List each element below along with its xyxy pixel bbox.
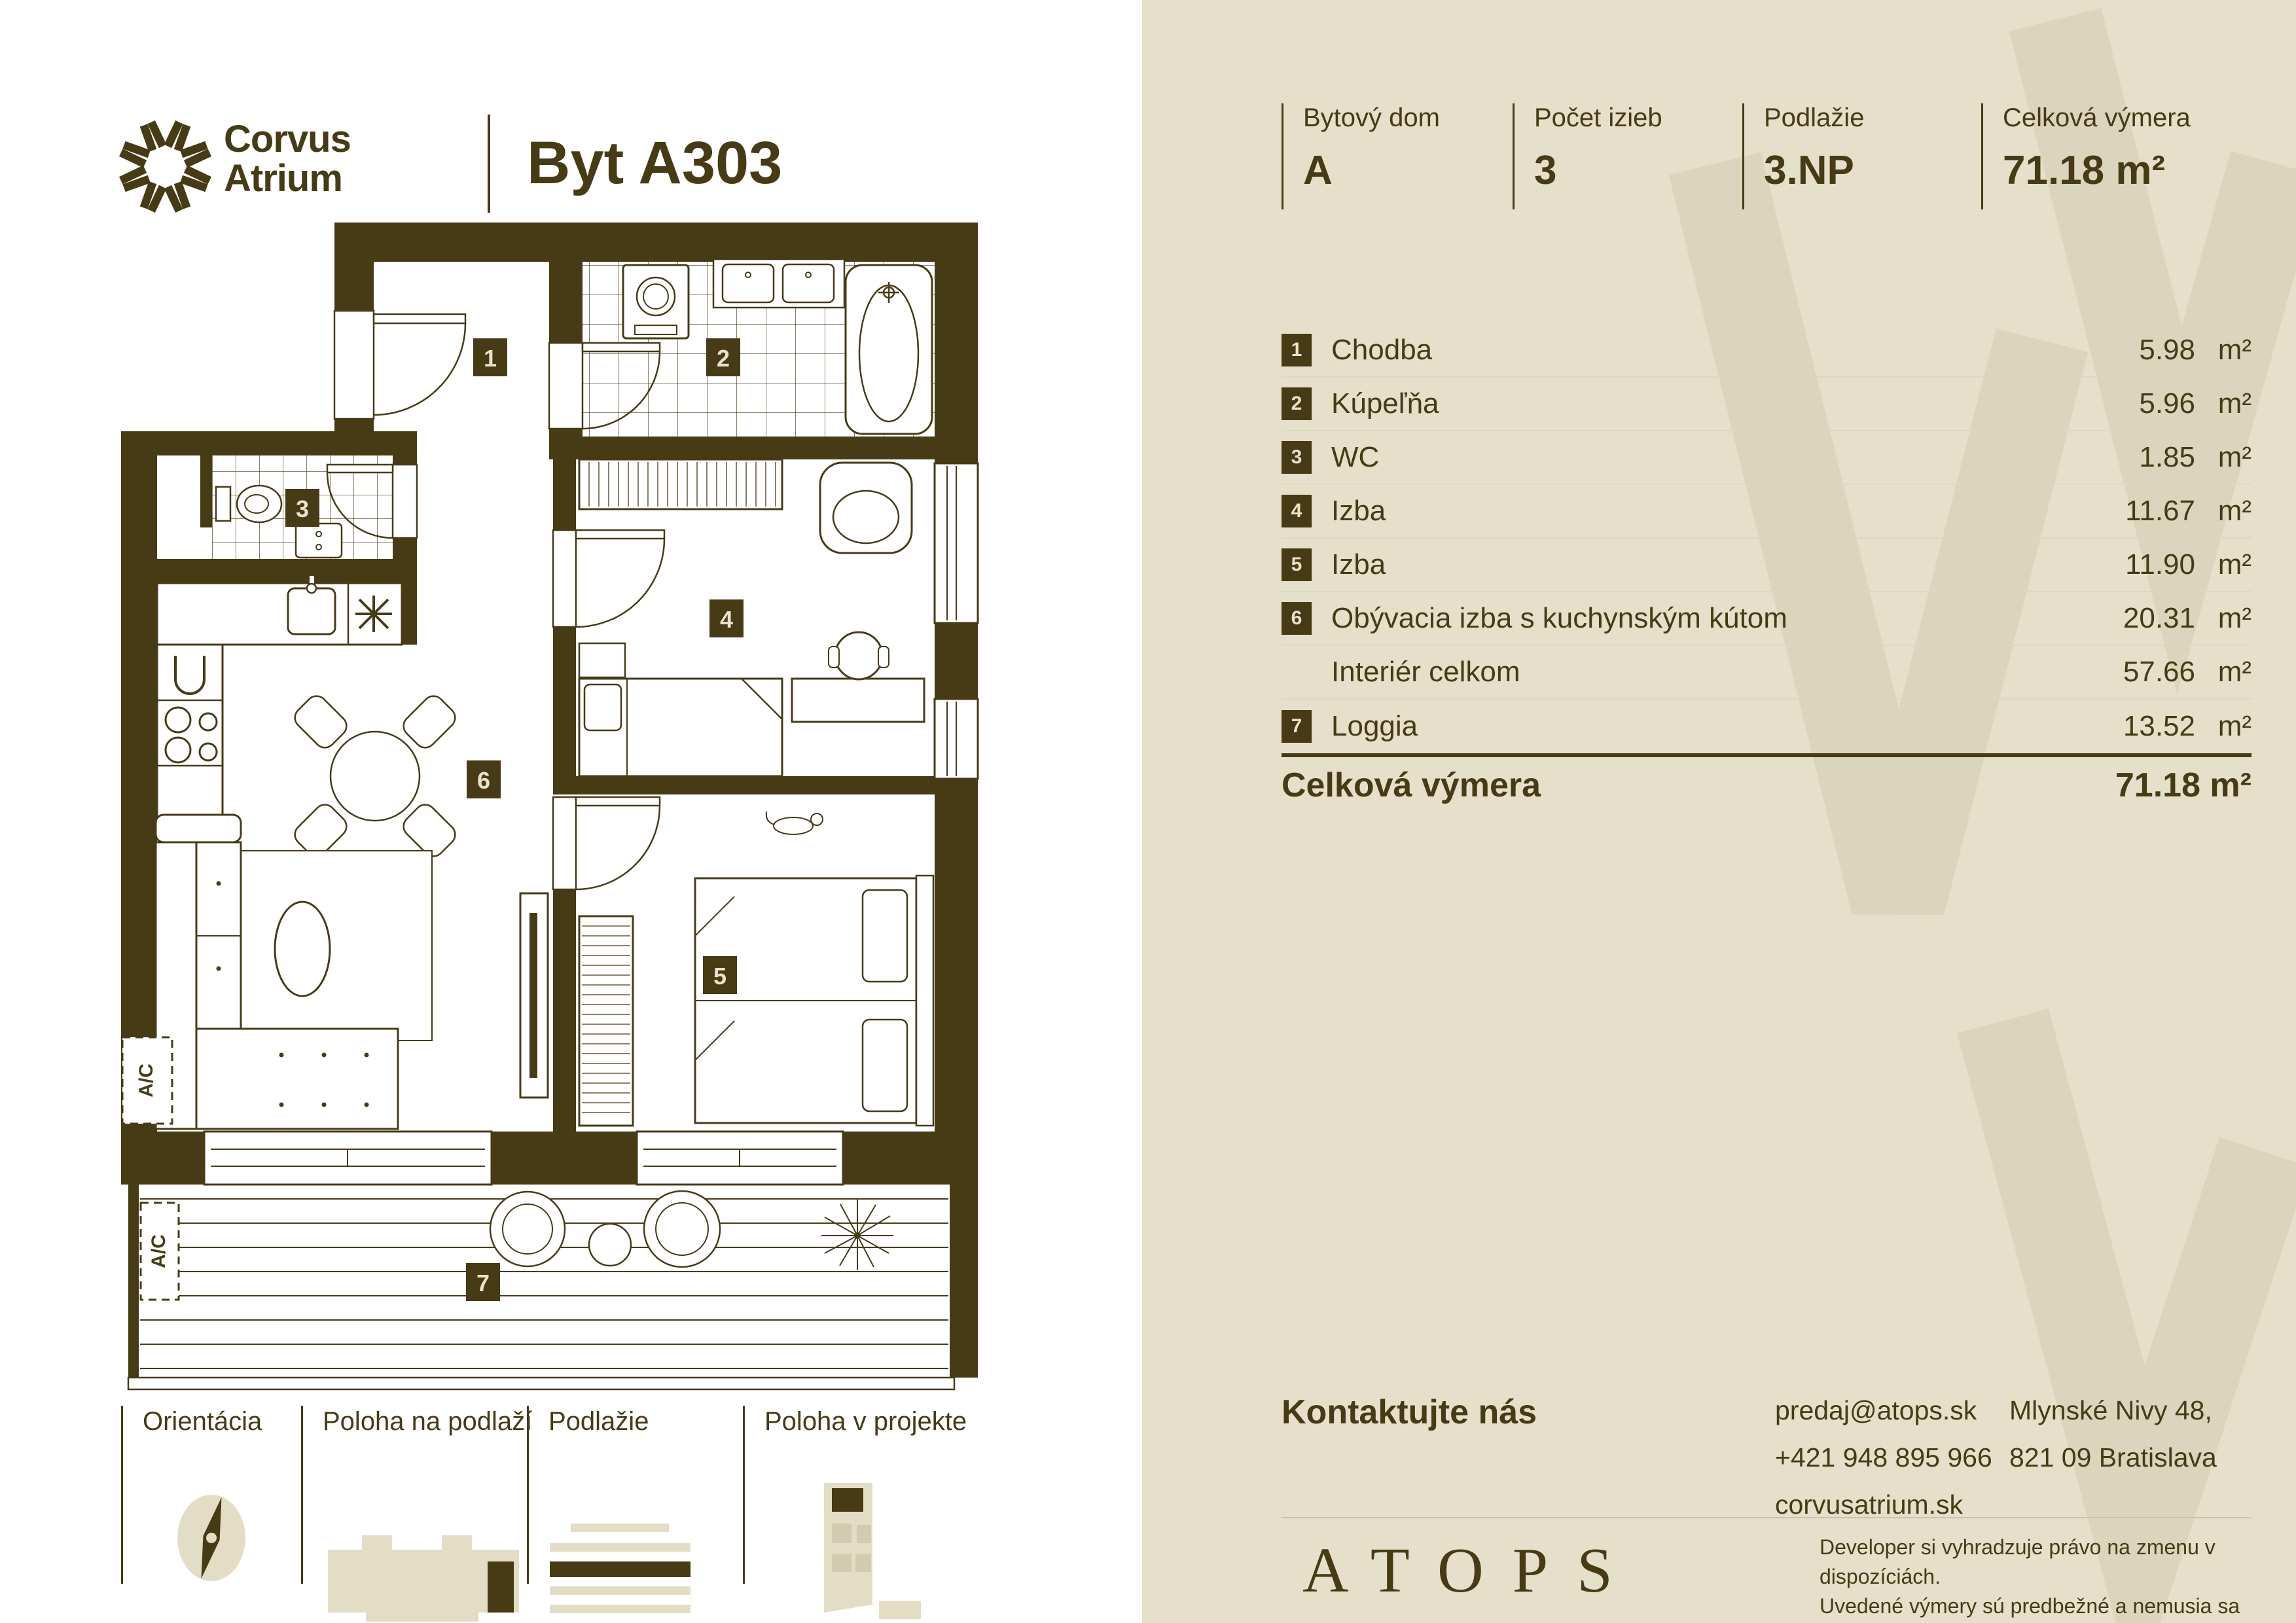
stat-storey: Podlažie 3.NP [1742,103,1864,209]
badge-4: 4 [709,599,744,637]
row-label: Loggia [1331,710,1418,743]
row-unit: m² [2195,441,2251,474]
total-area-row: Celková výmera 71.18 m² [1282,753,2251,813]
brand-divider [488,115,490,213]
row-badge: 2 [1282,387,1312,420]
table-row: 3 WC 1.85 m² [1282,431,2251,485]
developer-logo: ATOPS [1302,1534,1641,1607]
wardrobe-icon [579,459,782,509]
contact-phone[interactable]: +421 948 895 966 [1775,1442,1992,1473]
total-label: Celková výmera [1282,766,1541,805]
stat-label: Celková výmera [2003,103,2191,133]
row-area: 1.85 [2090,441,2195,474]
row-badge: 3 [1282,441,1312,474]
row-area: 20.31 [2090,602,2195,635]
stat-value: 3 [1534,147,1662,194]
svg-text:1: 1 [484,345,497,372]
contact-email[interactable]: predaj@atops.sk [1775,1395,1977,1426]
table-row: 6 Obývacia izba s kuchynským kútom 20.31… [1282,592,2251,646]
footer-divider [1282,1517,2251,1518]
floor-position-icon [323,1516,539,1623]
stat-label: Podlažie [1764,103,1864,133]
svg-text:7: 7 [476,1270,490,1296]
badge-5: 5 [703,956,737,994]
row-badge: 1 [1282,334,1312,366]
info-panel: Bytový dom A Počet izieb 3 Podlažie 3.NP… [1142,0,2296,1623]
single-bed-icon [579,679,782,776]
bathtub-icon [846,265,932,434]
wardrobe5-icon [579,916,633,1126]
room4-furniture [579,459,924,776]
row-area: 5.98 [2090,334,2195,366]
contact-address-line2: 821 09 Bratislava [2009,1442,2217,1473]
table-row: 5 Izba 11.90 m² [1282,539,2251,592]
row-unit: m² [2195,710,2251,743]
compass-icon [152,1479,270,1597]
loggia-poufs [490,1191,720,1267]
contact-address-line1: Mlynské Nivy 48, [2009,1395,2212,1426]
entrance-door [334,311,465,419]
badge-1: 1 [473,338,507,376]
row-unit: m² [2195,387,2251,420]
toilet-icon [216,486,281,522]
svg-text:6: 6 [477,767,490,794]
row-unit: m² [2195,495,2251,527]
legend-storey: Podlažie [527,1406,742,1584]
stat-value: 71.18 m² [2003,147,2191,194]
row-unit: m² [2195,656,2251,688]
row-area: 13.52 [2090,710,2195,743]
washing-machine-icon [623,265,689,338]
disclaimer: Developer si vyhradzuje právo na zmenu v… [1820,1533,2296,1623]
cat-figure [766,811,823,834]
kitchen-column [157,645,223,826]
unit-title: Byt A303 [527,129,782,198]
table-row: 7 Loggia 13.52 m² [1282,700,2251,753]
ac-label-living: A/C [135,1063,157,1097]
row-label: WC [1331,441,1379,474]
flyer-page: A/C A/C 1 2 3 4 5 6 7 [0,0,2296,1623]
row-label: Obývacia izba s kuchynským kútom [1331,602,1787,635]
brand-name-line1: Corvus [224,120,351,159]
dining-table-icon [291,692,459,861]
badge-2: 2 [706,338,740,376]
ac-label-loggia: A/C [148,1234,170,1268]
table-row: 1 Chodba 5.98 m² [1282,324,2251,378]
row-area: 5.96 [2090,387,2195,420]
stat-label: Bytový dom [1303,103,1440,133]
row-area: 11.90 [2090,548,2195,581]
row-label: Izba [1331,495,1386,527]
stat-rooms: Počet izieb 3 [1513,103,1662,209]
svg-text:4: 4 [720,606,733,633]
disclaimer-line2: Uvedené výmery sú predbežné a nemusia sa… [1820,1592,2296,1623]
row-label: Chodba [1331,334,1432,366]
tv-board-icon [520,893,548,1097]
row-label: Izba [1331,548,1386,581]
contact-heading: Kontaktujte nás [1282,1393,1537,1432]
legend-orientation: Orientácia [121,1406,299,1584]
row-badge [1282,656,1312,688]
legend-label: Poloha v projekte [764,1407,982,1436]
rug [241,851,432,1041]
stat-value: 3.NP [1764,147,1864,194]
project-position-icon [781,1471,951,1623]
armchair-icon [820,463,912,553]
total-value: 71.18 m² [2115,766,2251,805]
legend-label: Poloha na podlaží [323,1407,525,1436]
room4-door [553,530,664,627]
row-label: Interiér celkom [1331,656,1520,688]
desk-and-chair-icon [792,632,924,722]
svg-text:2: 2 [717,345,730,372]
double-bed-icon [695,878,916,1123]
room5-door [553,797,660,889]
row-badge: 4 [1282,495,1312,527]
bed-side-panel [916,876,933,1126]
legend-label: Orientácia [143,1407,299,1436]
wc-sink-icon [296,524,342,558]
dishwasher-icon [355,596,392,632]
row-label: Kúpeľňa [1331,387,1439,420]
stat-total-area: Celková výmera 71.18 m² [1981,103,2191,209]
row-badge: 7 [1282,710,1312,743]
legend-label: Podlažie [548,1407,742,1436]
corvus-starburst-icon [115,116,216,217]
svg-text:5: 5 [713,963,726,990]
loggia [128,1191,954,1389]
stat-value: A [1303,147,1440,194]
coffee-table-icon [275,902,330,996]
legend-floor-position: Poloha na podlaží [301,1406,525,1584]
room-area-table: 1 Chodba 5.98 m² 2 Kúpeľňa 5.96 m² 3 WC … [1282,324,2251,813]
stat-building: Bytový dom A [1282,103,1440,209]
table-row-interior-total: Interiér celkom 57.66 m² [1282,646,2251,700]
floorplan-drawing: A/C A/C 1 2 3 4 5 6 7 [0,0,1142,1623]
badge-6: 6 [467,760,501,798]
table-row: 4 Izba 11.67 m² [1282,485,2251,539]
svg-text:3: 3 [296,495,309,522]
badge-7: 7 [466,1263,500,1301]
brand-name: Corvus Atrium [224,120,351,198]
contact-website[interactable]: corvusatrium.sk [1775,1489,1963,1520]
plan-panel: A/C A/C 1 2 3 4 5 6 7 [0,0,1142,1623]
disclaimer-line1: Developer si vyhradzuje právo na zmenu v… [1820,1533,2296,1592]
storey-icon [550,1522,694,1623]
row-unit: m² [2195,548,2251,581]
double-sink-icon [713,259,844,308]
stat-label: Počet izieb [1534,103,1662,133]
row-badge: 5 [1282,548,1312,581]
loggia-edge [128,1378,954,1389]
badge-3: 3 [285,489,319,527]
legend-project-position: Poloha v projekte [743,1406,982,1584]
plant-icon [821,1200,893,1270]
row-unit: m² [2195,334,2251,366]
nightstand [579,643,625,677]
row-unit: m² [2195,602,2251,635]
brand-name-line2: Atrium [224,159,351,198]
row-badge: 6 [1282,602,1312,635]
row-area: 11.67 [2090,495,2195,527]
row-area: 57.66 [2090,656,2195,688]
table-row: 2 Kúpeľňa 5.96 m² [1282,378,2251,431]
room5-furniture [579,811,933,1126]
